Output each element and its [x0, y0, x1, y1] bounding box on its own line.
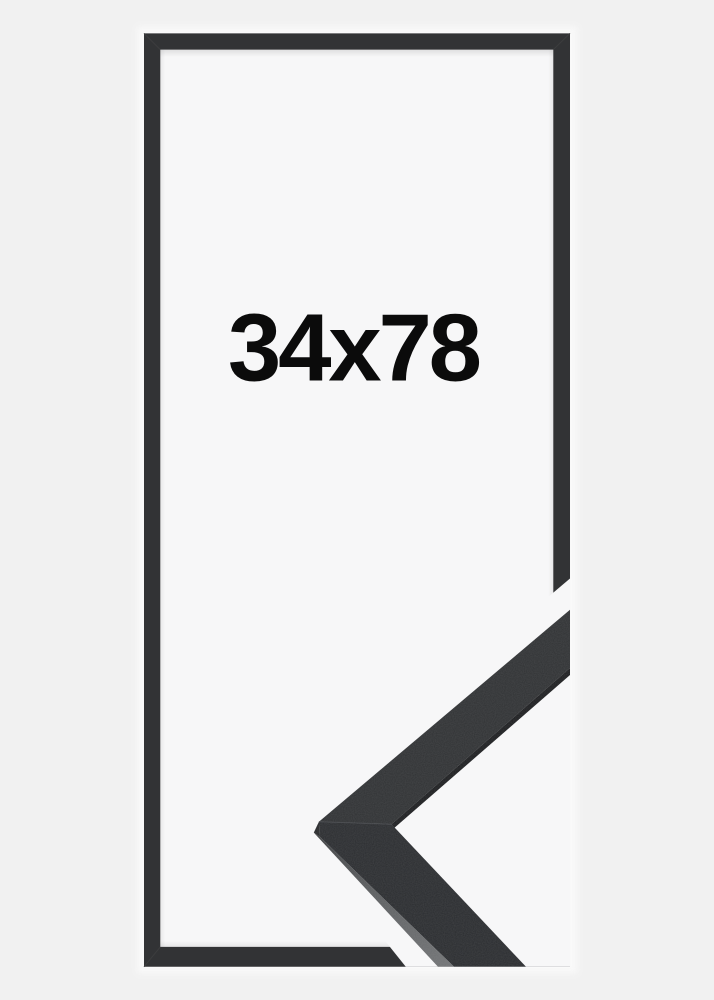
svg-text:34x78: 34x78 [228, 294, 480, 401]
